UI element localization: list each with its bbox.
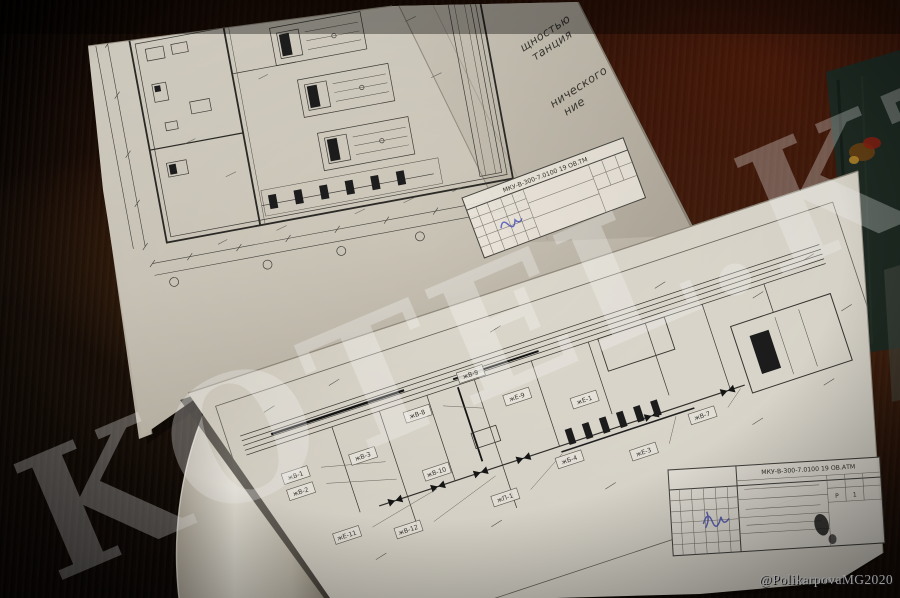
scene: щностью танция нического ние: [0, 0, 900, 598]
photo-of-blueprints: щностью танция нического ние: [0, 0, 900, 598]
vignette-overlay: [0, 0, 900, 598]
photo-credit: @PolikarpovaMG2020: [759, 572, 893, 587]
top-shade: [0, 0, 900, 34]
